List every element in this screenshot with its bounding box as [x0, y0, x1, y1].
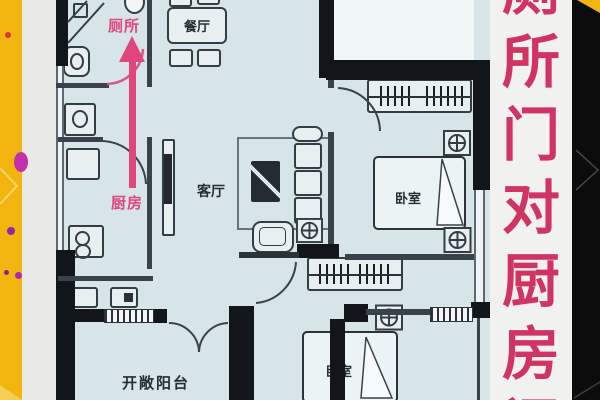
up-arrow-shaft [129, 60, 136, 188]
yellow-corner-triangle [572, 0, 600, 14]
wall [229, 306, 254, 400]
wall [328, 80, 334, 88]
left-margin [22, 0, 56, 400]
wall [154, 309, 167, 323]
caption-char: 门 [490, 392, 572, 400]
up-arrow-icon [119, 36, 145, 62]
floor-plan: 餐厅 卧室 [56, 0, 490, 400]
right-black-strip [572, 0, 600, 400]
chair-icon [169, 49, 193, 67]
caption-char: 所 [490, 27, 572, 99]
wardrobe [307, 257, 403, 291]
window [474, 190, 485, 302]
balcony-label: 开敞阳台 [122, 372, 190, 393]
caption-char: 厨 [490, 246, 572, 318]
wardrobe [367, 79, 472, 113]
wall [58, 276, 153, 281]
living-label: 客厅 [197, 181, 225, 201]
bathroom-label: 厕所 [108, 15, 140, 36]
adjacent-room-area [334, 0, 474, 61]
bed: 卧室 [302, 331, 398, 400]
tv-icon [164, 154, 172, 204]
toilet-bowl [70, 53, 84, 70]
wall [328, 132, 334, 244]
dining-table: 餐厅 [167, 7, 227, 44]
bedroom1-label: 卧室 [395, 188, 421, 207]
wardrobe-rail [369, 96, 470, 98]
wall [56, 83, 109, 88]
decor-dot [15, 272, 22, 279]
left-decor-strip [0, 0, 22, 400]
caption-char: 门 [490, 100, 572, 172]
sofa-cushion [294, 170, 322, 196]
wall [239, 252, 299, 258]
decor-dot [7, 227, 15, 235]
bedroom2-door-arc [256, 262, 296, 303]
kitchen-label: 厨房 [111, 192, 143, 213]
wall [297, 244, 339, 258]
armchair [252, 221, 294, 253]
wall [366, 309, 432, 315]
caption-char: 房 [490, 319, 572, 391]
bed: 卧室 [373, 156, 466, 230]
bathroom-drain-icon [73, 3, 88, 18]
wall [345, 254, 474, 260]
appliance-detail [124, 293, 133, 302]
wall [73, 309, 105, 322]
wall [330, 319, 345, 400]
nightstand-icon [443, 227, 472, 253]
kitchen-counter [66, 148, 100, 180]
nightstand-icon [443, 130, 471, 156]
decor-dot [5, 32, 11, 38]
burner [75, 244, 91, 259]
window-striped [104, 309, 154, 323]
wall [326, 60, 490, 80]
wall [56, 0, 68, 66]
sink-icon [124, 0, 145, 14]
decor-diagonal [572, 380, 600, 400]
decor-triangle-outline [0, 160, 22, 210]
kitchen-door-arc [101, 141, 146, 184]
chair-icon [197, 0, 220, 5]
armchair-seat [259, 227, 286, 246]
wall [147, 137, 152, 269]
screenshot-root: 餐厅 卧室 [0, 0, 600, 400]
wardrobe-rail [309, 274, 401, 276]
wall [147, 0, 152, 87]
window [56, 66, 64, 252]
dining-label: 餐厅 [184, 16, 210, 35]
coffee-table [251, 161, 280, 202]
wall [477, 318, 480, 400]
caption-strip: 厕 所 门 对 厨 房 门 [490, 0, 572, 400]
decor-chevron [572, 145, 600, 195]
wall [56, 250, 75, 400]
washing-machine-icon [64, 103, 96, 136]
wall [473, 60, 490, 190]
decor-triangle-fill [0, 378, 22, 400]
wall [58, 137, 103, 142]
balcony-door-arc [199, 323, 228, 352]
wall [344, 304, 368, 322]
caption-char: 对 [490, 173, 572, 245]
side-table-icon [296, 218, 323, 243]
window-striped [430, 307, 473, 322]
washer-drum [72, 110, 88, 128]
sofa-cushion [294, 143, 322, 169]
caption-char: 厕 [490, 0, 572, 26]
chair-icon [169, 0, 192, 7]
chair-icon [197, 49, 221, 67]
decor-dot [4, 270, 9, 275]
wall [471, 302, 490, 318]
sofa [292, 126, 325, 226]
balcony-door-arc [169, 323, 199, 352]
sofa-armrest [292, 126, 323, 142]
small-appliance-icon [110, 287, 138, 308]
